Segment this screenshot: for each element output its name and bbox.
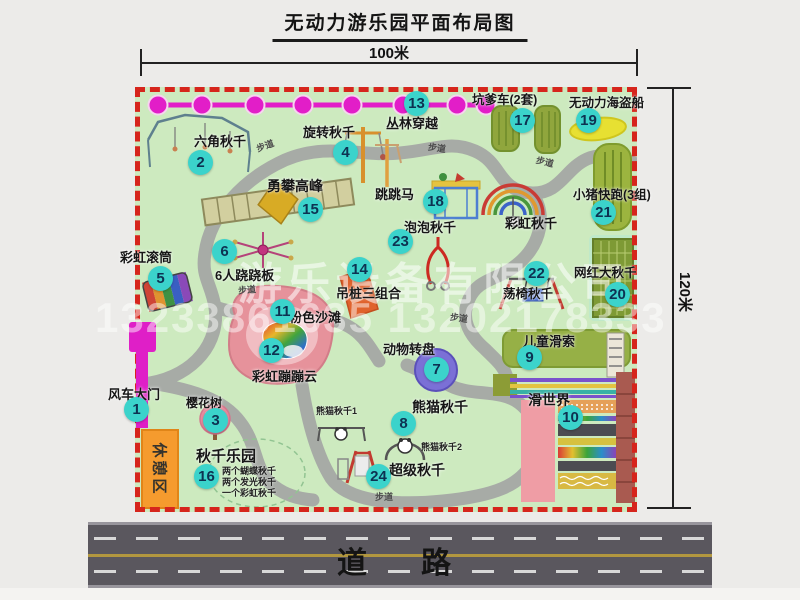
height-dimension-tick-bottom	[647, 507, 691, 509]
windmill-gate-post	[136, 352, 148, 428]
height-dimension-tick-top	[647, 87, 691, 89]
rainbow-swing-label: 彩虹秋千	[505, 213, 557, 232]
page: 无动力游乐园平面布局图 100米 120米	[0, 0, 800, 600]
width-dimension-label: 100米	[141, 42, 637, 63]
road: 道 路	[88, 522, 712, 588]
watermark-phone: 13233861635 13202178333	[95, 294, 667, 342]
height-dimension-line	[672, 88, 674, 508]
height-dimension-label: 120米	[675, 272, 696, 312]
road-label: 道 路	[88, 538, 712, 582]
below-road-strip	[0, 588, 800, 600]
page-title: 无动力游乐园平面布局图	[272, 8, 527, 42]
